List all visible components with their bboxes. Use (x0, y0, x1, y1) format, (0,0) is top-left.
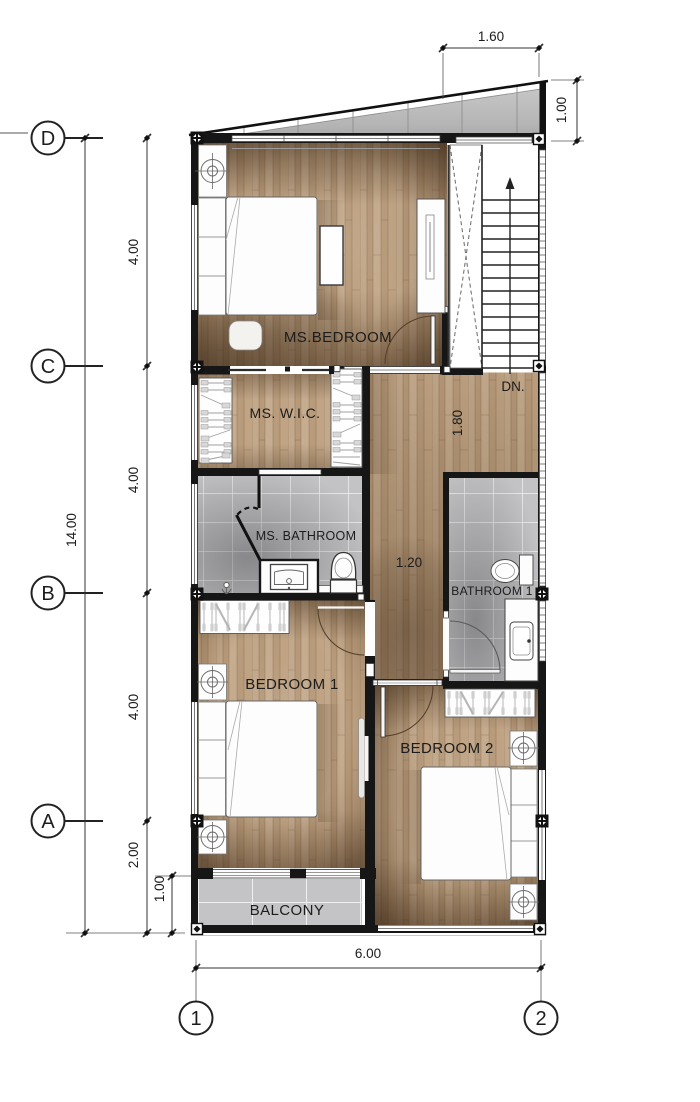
svg-text:BALCONY: BALCONY (250, 902, 325, 919)
svg-text:BEDROOM 1: BEDROOM 1 (245, 676, 339, 693)
svg-text:1.20: 1.20 (396, 555, 422, 570)
svg-text:MS. W.I.C.: MS. W.I.C. (250, 405, 321, 421)
svg-text:D: D (41, 128, 55, 150)
svg-text:4.00: 4.00 (126, 467, 141, 493)
svg-text:4.00: 4.00 (126, 239, 141, 265)
svg-text:4.00: 4.00 (126, 694, 141, 720)
svg-text:1.00: 1.00 (152, 876, 167, 902)
svg-text:1.80: 1.80 (450, 410, 465, 436)
svg-text:B: B (41, 583, 54, 605)
svg-text:MS. BATHROOM: MS. BATHROOM (256, 529, 357, 543)
svg-text:1.60: 1.60 (478, 29, 504, 44)
svg-text:BATHROOM 1: BATHROOM 1 (451, 584, 532, 598)
svg-text:6.00: 6.00 (355, 946, 381, 961)
svg-text:1.00: 1.00 (554, 97, 569, 123)
svg-text:14.00: 14.00 (64, 513, 79, 547)
svg-text:BEDROOM 2: BEDROOM 2 (400, 740, 494, 757)
svg-text:A: A (41, 811, 55, 833)
svg-text:MS.BEDROOM: MS.BEDROOM (284, 329, 392, 346)
svg-text:C: C (41, 356, 55, 378)
svg-text:2.00: 2.00 (126, 842, 141, 868)
svg-text:2: 2 (535, 1008, 546, 1030)
svg-text:1: 1 (190, 1008, 201, 1030)
svg-text:DN.: DN. (501, 379, 524, 394)
